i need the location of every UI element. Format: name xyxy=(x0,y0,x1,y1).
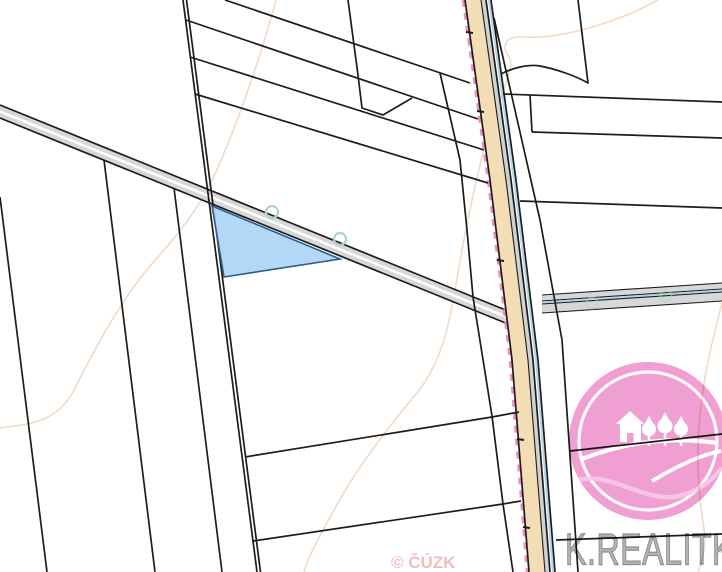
cadastral-map-canvas[interactable] xyxy=(0,0,722,572)
cadastral-map-viewport[interactable]: K.REALITKA © ČÚZK xyxy=(0,0,722,572)
trees-icon xyxy=(642,412,688,446)
copyright-watermark: © ČÚZK xyxy=(391,553,455,572)
brand-watermark: K.REALITKA xyxy=(565,526,722,572)
notch-boundary xyxy=(348,0,412,115)
double-boundary-line xyxy=(183,0,257,572)
road-gray-diagonal xyxy=(0,105,508,324)
road-gray-right xyxy=(542,283,722,313)
agency-logo xyxy=(569,362,722,520)
